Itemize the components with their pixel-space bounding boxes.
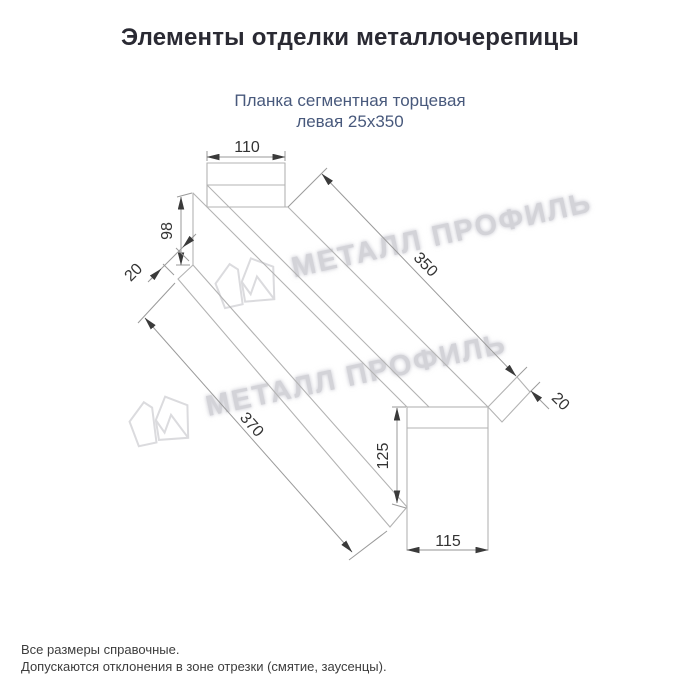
dim-left-hem: 20 bbox=[122, 260, 147, 285]
dimension-lines bbox=[138, 151, 549, 560]
dim-right-height: 125 bbox=[375, 443, 392, 470]
dim-length-bottom: 370 bbox=[236, 409, 267, 440]
product-subtitle: Планка сегментная торцевая левая 25х350 bbox=[0, 90, 700, 132]
dim-length-top: 350 bbox=[410, 249, 441, 280]
footnotes: Все размеры справочные. Допускаются откл… bbox=[21, 641, 387, 675]
profile-outline bbox=[178, 163, 530, 550]
footnote-line2: Допускаются отклонения в зоне отрезки (с… bbox=[21, 658, 387, 675]
dim-left-height: 98 bbox=[159, 222, 176, 240]
page: МЕТАЛЛ ПРОФИЛЬ МЕТАЛЛ ПРОФИЛЬ bbox=[0, 0, 700, 700]
product-subtitle-line2: левая 25х350 bbox=[0, 111, 700, 132]
dim-right-width: 115 bbox=[435, 533, 461, 550]
footnote-line1: Все размеры справочные. bbox=[21, 641, 387, 658]
page-title: Элементы отделки металлочерепицы bbox=[0, 24, 700, 52]
dim-right-hem: 20 bbox=[548, 390, 573, 415]
dim-top-width: 110 bbox=[234, 139, 260, 156]
product-subtitle-line1: Планка сегментная торцевая bbox=[0, 90, 700, 111]
